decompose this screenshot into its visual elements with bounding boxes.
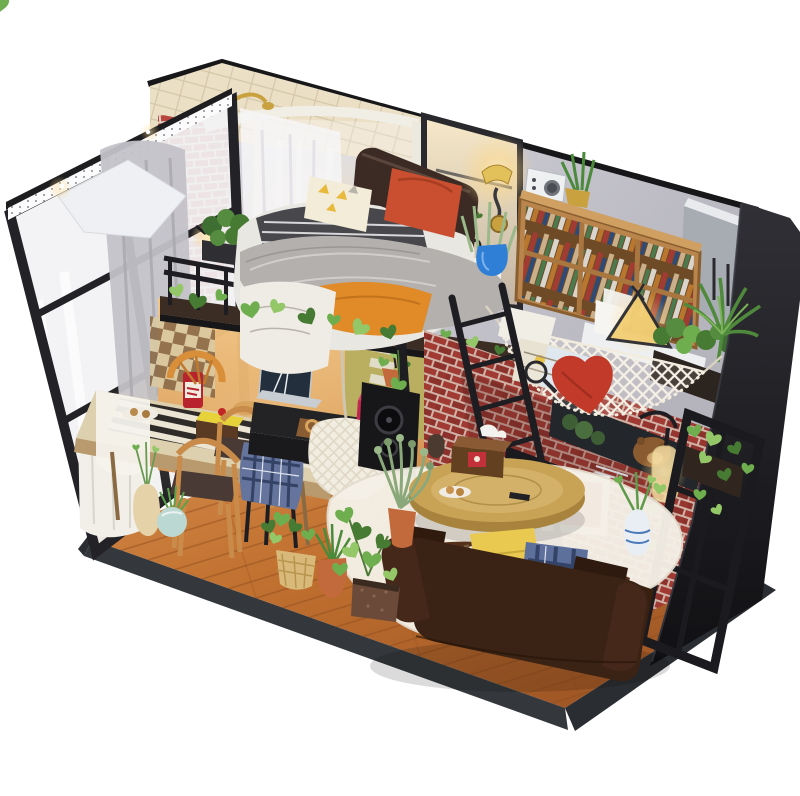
duvet-drape	[240, 282, 336, 374]
small-vase	[427, 434, 444, 458]
photo-stage: DIY miniature dollhouse kit diorama of a…	[0, 0, 800, 796]
dollhouse-photo: DIY miniature dollhouse kit diorama of a…	[0, 0, 800, 796]
